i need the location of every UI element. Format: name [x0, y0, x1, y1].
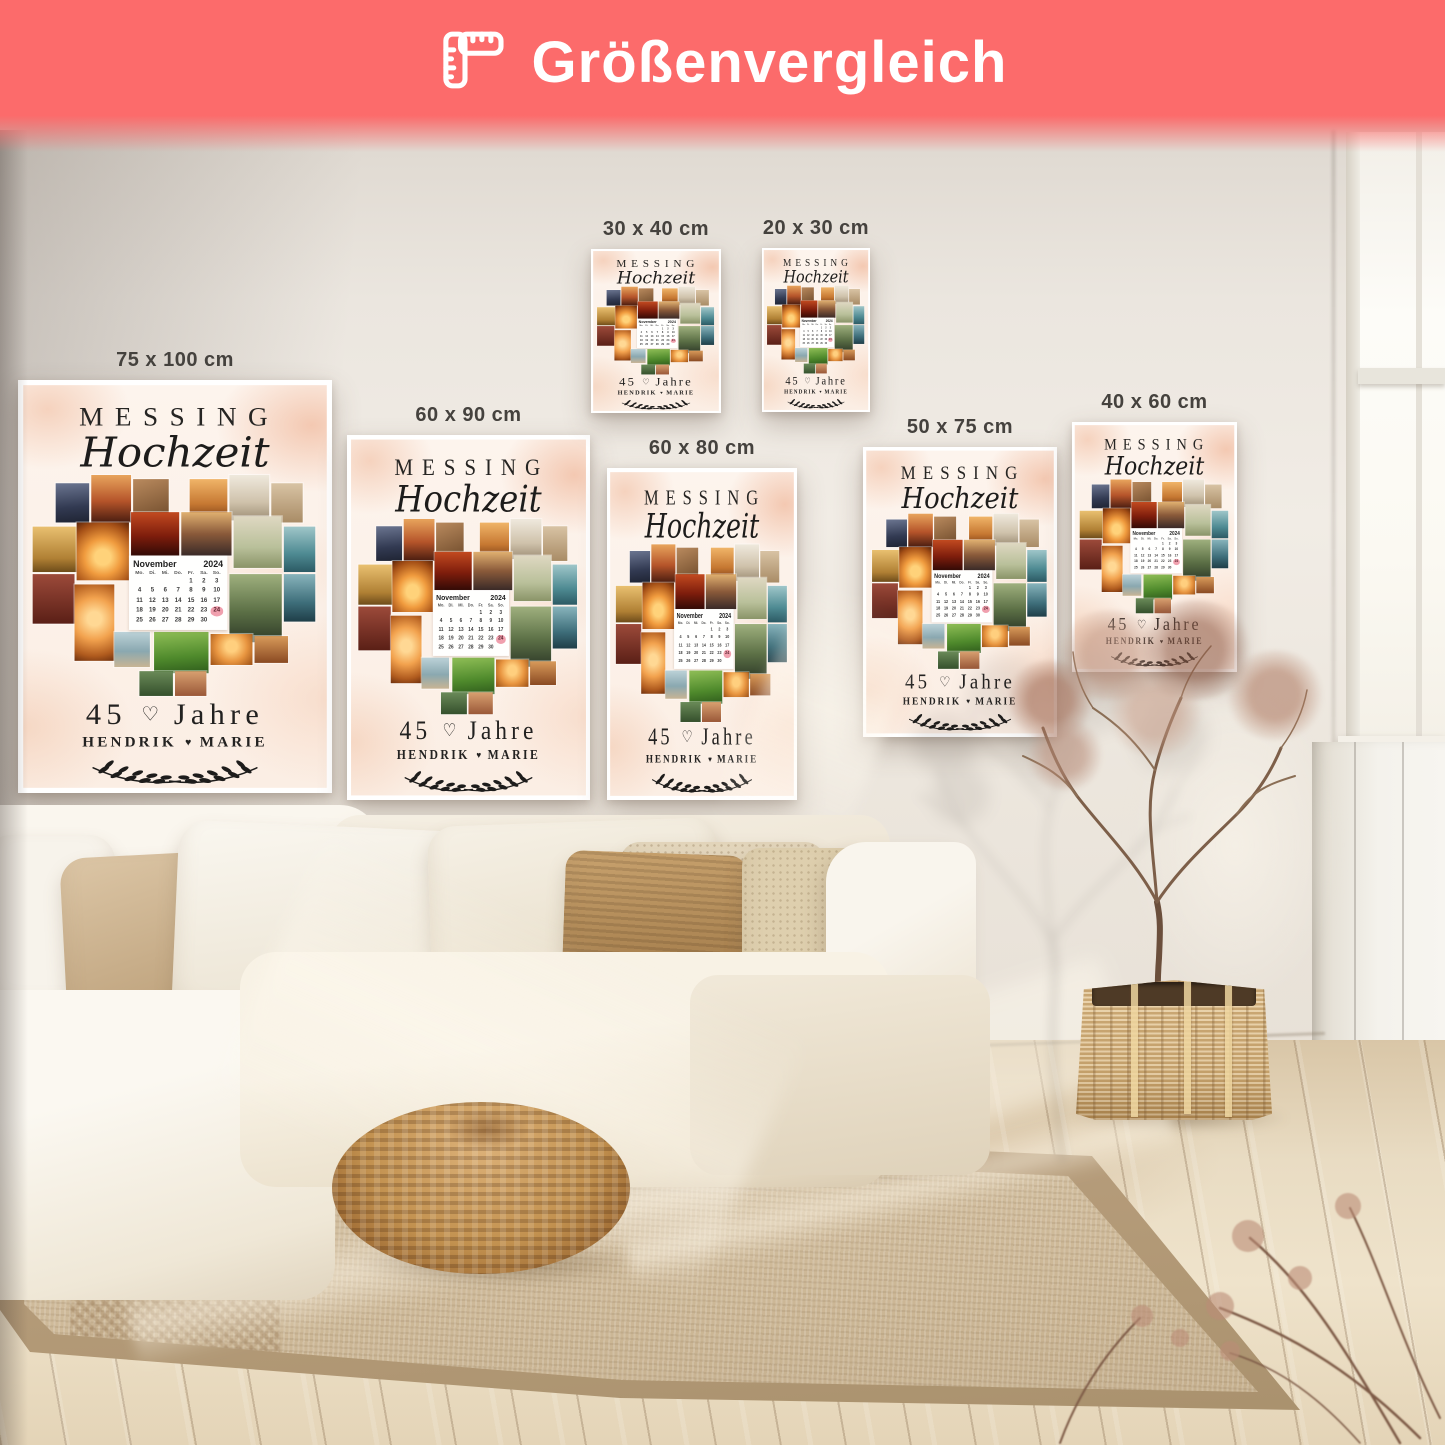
wicker-pouf: [332, 1102, 630, 1274]
size-comparison-mockup: 75 x 100 cm MESSING Hochzeit November 20…: [0, 0, 1445, 1445]
banner-content: Größenvergleich: [438, 24, 1008, 101]
foreground-sprigs: [880, 1118, 1445, 1445]
size-comparison-banner: Größenvergleich: [0, 0, 1445, 152]
banner-title: Größenvergleich: [532, 29, 1008, 96]
ruler-icon: [438, 24, 510, 101]
photo-edge-shade: [0, 130, 28, 1445]
